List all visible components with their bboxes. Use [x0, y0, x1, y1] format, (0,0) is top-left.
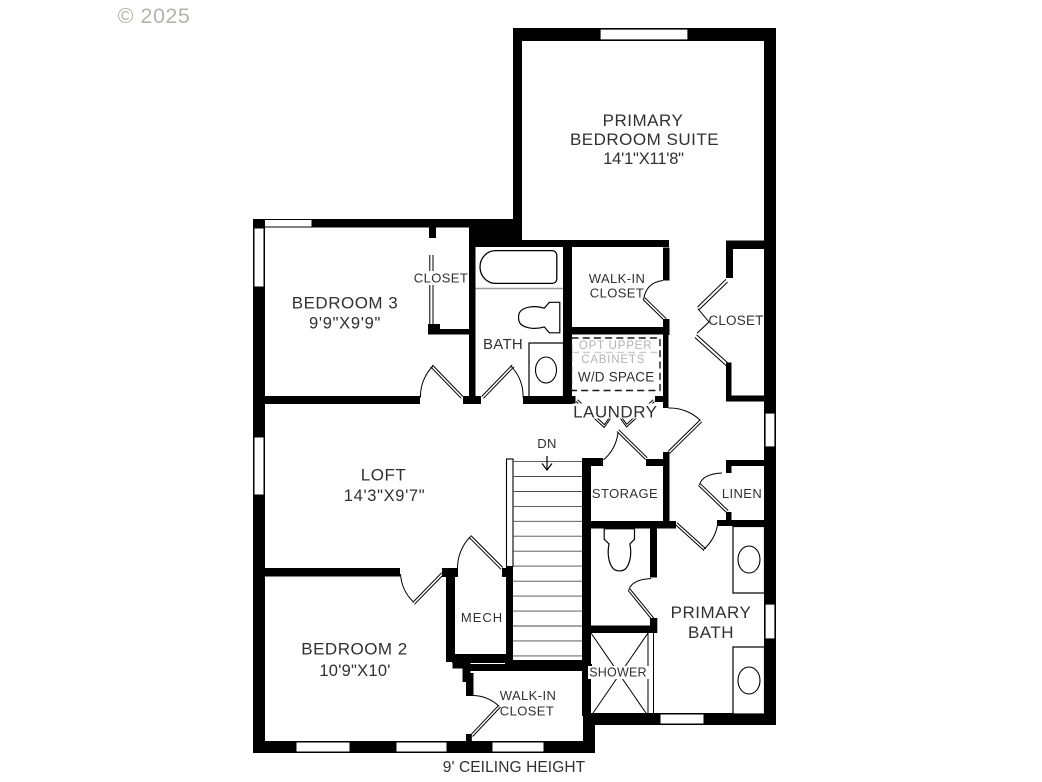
svg-text:CLOSET: CLOSET	[500, 704, 554, 719]
svg-text:LAUNDRY: LAUNDRY	[573, 403, 657, 422]
svg-text:BEDROOM SUITE: BEDROOM SUITE	[570, 130, 719, 149]
svg-text:DN: DN	[537, 436, 557, 451]
svg-text:10'9"X10': 10'9"X10'	[319, 662, 390, 680]
svg-text:OPT UPPER: OPT UPPER	[579, 340, 652, 352]
svg-text:14'3"X9'7": 14'3"X9'7"	[344, 487, 425, 505]
svg-text:© 2025: © 2025	[118, 4, 191, 28]
svg-text:PRIMARY: PRIMARY	[603, 111, 684, 130]
svg-text:14'1"X11'8": 14'1"X11'8"	[603, 150, 684, 168]
svg-text:SHOWER: SHOWER	[589, 666, 646, 680]
svg-text:9' CEILING HEIGHT: 9' CEILING HEIGHT	[443, 759, 586, 776]
svg-text:W/D SPACE: W/D SPACE	[578, 369, 655, 384]
svg-text:BATH: BATH	[688, 623, 734, 642]
svg-text:WALK-IN: WALK-IN	[500, 688, 557, 703]
svg-text:BEDROOM 3: BEDROOM 3	[292, 294, 399, 313]
svg-text:CABINETS: CABINETS	[581, 354, 645, 366]
svg-text:MECH: MECH	[461, 610, 503, 625]
svg-text:STORAGE: STORAGE	[592, 486, 658, 501]
svg-text:BATH: BATH	[483, 336, 523, 353]
svg-text:CLOSET: CLOSET	[708, 313, 763, 328]
svg-text:LINEN: LINEN	[722, 486, 762, 501]
svg-text:CLOSET: CLOSET	[414, 271, 468, 286]
svg-text:BEDROOM 2: BEDROOM 2	[301, 639, 408, 658]
svg-text:WALK-IN: WALK-IN	[589, 271, 646, 286]
svg-text:CLOSET: CLOSET	[590, 286, 644, 301]
svg-text:9'9"X9'9": 9'9"X9'9"	[309, 314, 381, 332]
svg-text:PRIMARY: PRIMARY	[671, 603, 752, 622]
svg-text:LOFT: LOFT	[361, 466, 406, 485]
